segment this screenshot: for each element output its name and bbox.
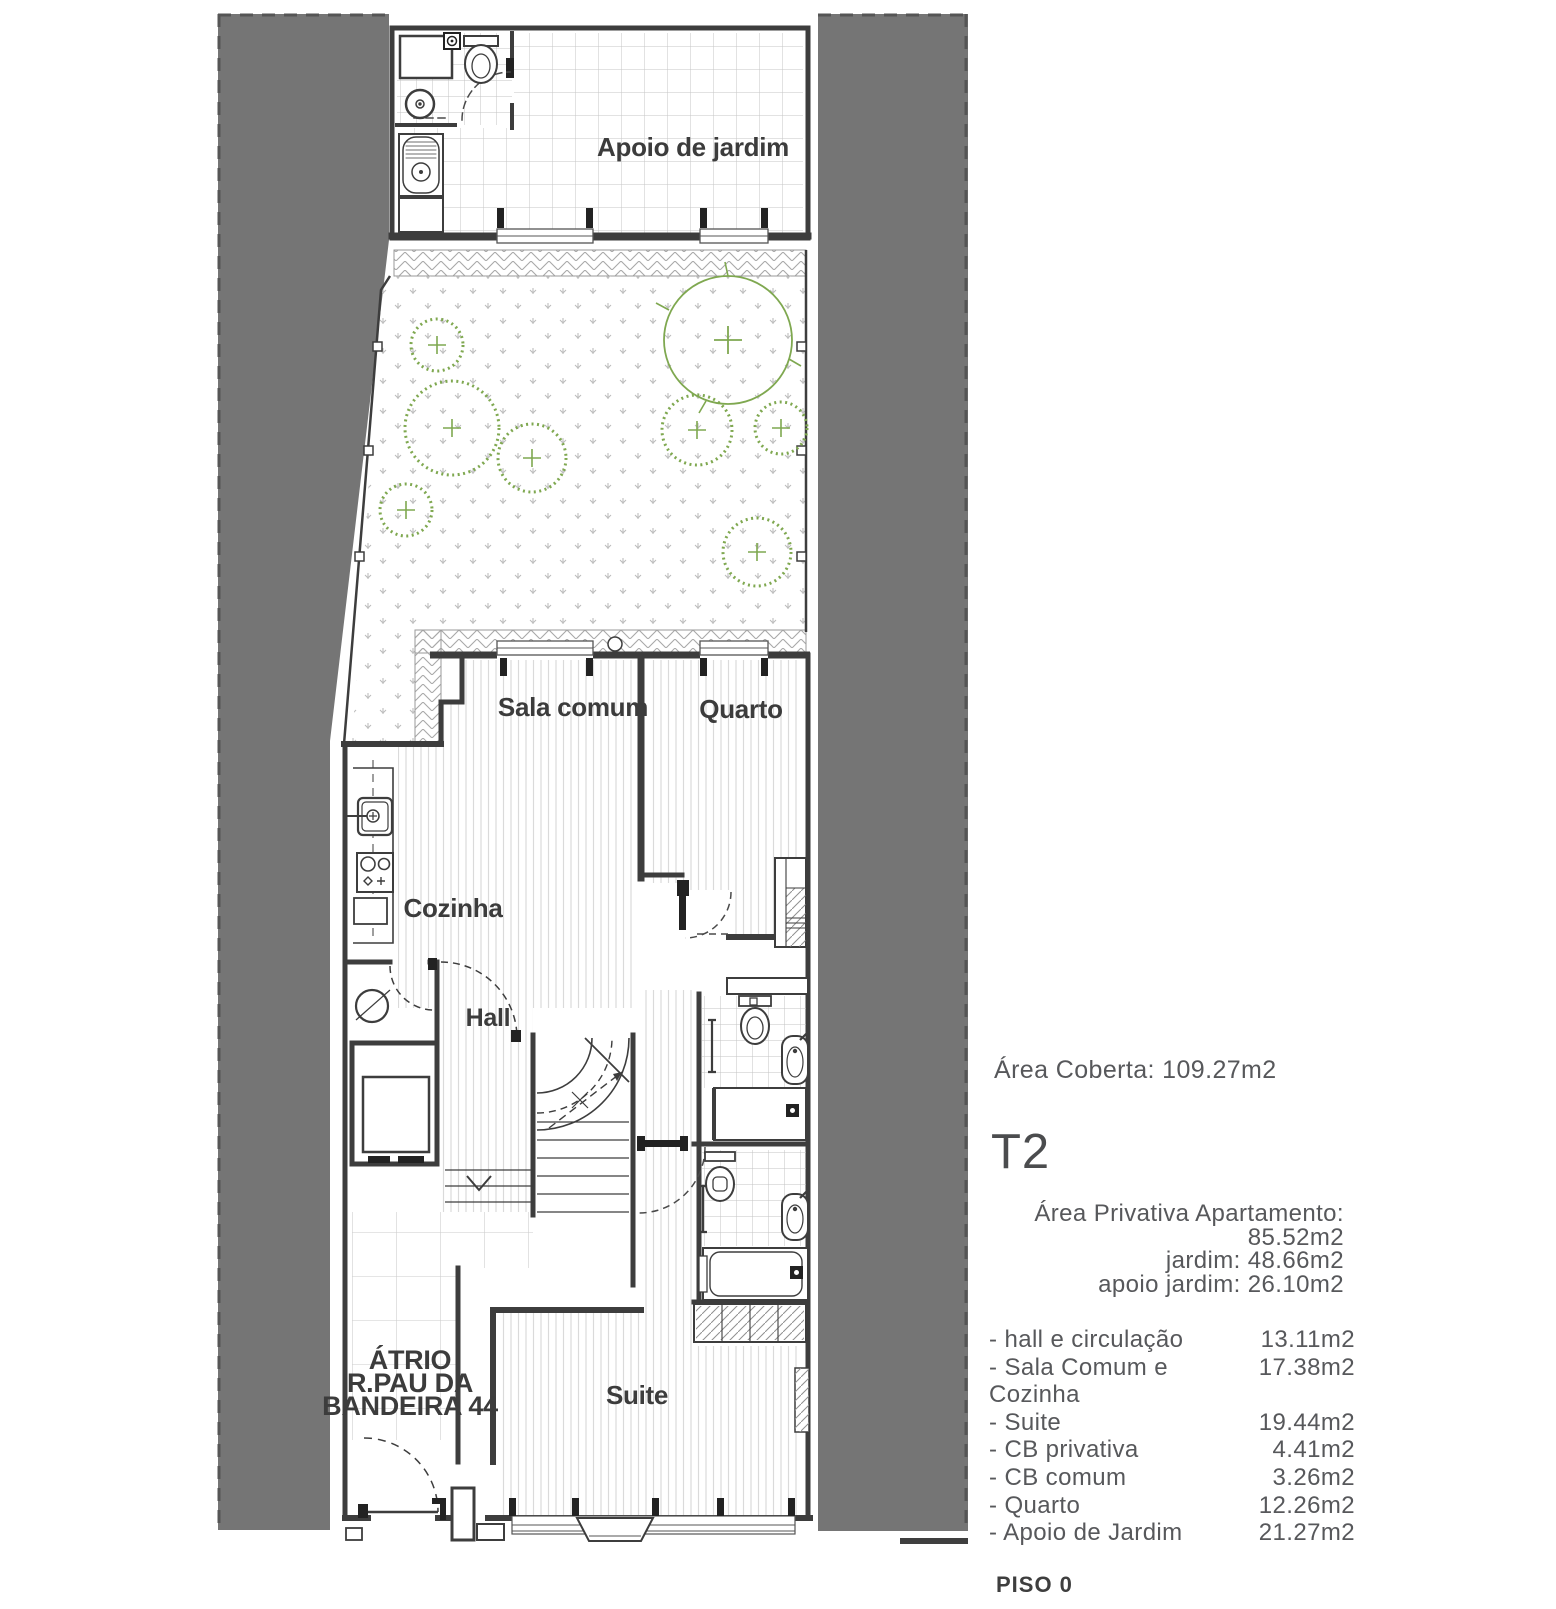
- room-areas-table: - hall e circulação 13.11m2 - Sala Comum…: [989, 1326, 1355, 1547]
- quarto-label: Quarto: [699, 694, 782, 724]
- private-area-line: apoio jardim: 26.10m2: [942, 1273, 1344, 1297]
- room-area-value: 13.11m2: [1261, 1326, 1355, 1354]
- bay-door: [577, 1518, 653, 1541]
- elevator-shaft: [352, 1043, 437, 1164]
- room-area-row: - hall e circulação 13.11m2: [989, 1326, 1355, 1354]
- unit-type-text: T2: [991, 1124, 1050, 1180]
- room-area-value: 19.44m2: [1259, 1409, 1355, 1437]
- hall-label: Hall: [466, 1004, 511, 1032]
- atrio-label-3: BANDEIRA 44: [322, 1391, 498, 1421]
- kitchen-fixtures: [344, 760, 393, 943]
- room-area-row: - Suite 19.44m2: [989, 1409, 1355, 1437]
- floor-name-text: PISO 0: [996, 1572, 1073, 1598]
- entry-step: [346, 1528, 362, 1540]
- room-area-row: - Sala Comum e Cozinha 17.38m2: [989, 1354, 1355, 1409]
- sala-comum-label: Sala comum: [498, 692, 648, 722]
- room-area-value: 4.41m2: [1273, 1436, 1355, 1464]
- sink-fixture: [782, 1032, 808, 1084]
- room-area-value: 3.26m2: [1273, 1464, 1355, 1492]
- room-area-label: - hall e circulação: [989, 1326, 1183, 1354]
- apoio-de-jardim-structure: Apoio de jardim: [392, 28, 808, 243]
- private-area-line: Área Privativa Apartamento: 85.52m2: [942, 1202, 1344, 1249]
- entrance-pillar: [452, 1488, 474, 1540]
- covered-area-text: Área Coberta: 109.27m2: [994, 1056, 1277, 1085]
- shower-tray: [714, 1088, 806, 1140]
- apoio-jardim-label: Apoio de jardim: [597, 132, 789, 162]
- room-area-label: - CB comum: [989, 1464, 1126, 1492]
- room-area-row: - Apoio de Jardim 21.27m2: [989, 1519, 1355, 1547]
- stove-fixture: [357, 853, 393, 892]
- door-jamb: [506, 58, 514, 78]
- cozinha-label: Cozinha: [403, 893, 503, 923]
- room-area-label: - Suite: [989, 1409, 1061, 1437]
- room-area-label: - CB privativa: [989, 1436, 1139, 1464]
- toilet-fixture: [705, 1152, 735, 1201]
- room-area-value: 12.26m2: [1259, 1492, 1355, 1520]
- right-block-base-mark: [900, 1538, 968, 1544]
- garden-hatch-strip-l: [415, 630, 441, 744]
- toilet-fixture: [464, 36, 498, 83]
- kitchen-sink-fixture: [344, 798, 392, 835]
- room-area-row: - CB comum 3.26m2: [989, 1464, 1355, 1492]
- entrance: [346, 1438, 504, 1540]
- sink-fixture: [782, 1190, 808, 1240]
- room-area-row: - CB privativa 4.41m2: [989, 1436, 1355, 1464]
- suite-label: Suite: [606, 1380, 668, 1410]
- bathroom-cb-comum: [702, 978, 808, 1140]
- suite-wardrobe: [694, 1304, 806, 1342]
- vanity-shelf: [727, 978, 808, 994]
- room-area-label: - Sala Comum e Cozinha: [989, 1354, 1259, 1409]
- room-area-value: 21.27m2: [1259, 1519, 1355, 1547]
- page: Apoio de jardim: [0, 0, 1556, 1609]
- door-swing-arc: [364, 1438, 438, 1512]
- kitchen-cabinet: [354, 898, 387, 924]
- private-area-line: jardim: 48.66m2: [942, 1249, 1344, 1273]
- suite-right-recess: [795, 1368, 809, 1432]
- bathtub-fixture: [699, 1248, 808, 1300]
- door-swing-arc: [685, 892, 731, 938]
- bathtub-fixture: [399, 134, 443, 232]
- room-area-row: - Quarto 12.26m2: [989, 1492, 1355, 1520]
- room-area-label: - Quarto: [989, 1492, 1080, 1520]
- toilet-fixture: [739, 996, 771, 1044]
- walkway-hatch: [394, 250, 806, 276]
- quarto-wardrobe: [775, 858, 806, 947]
- private-areas-block: Área Privativa Apartamento: 85.52m2 jard…: [942, 1202, 1344, 1296]
- neighbor-block-right: [818, 14, 968, 1544]
- round-sink-fixture: [406, 90, 434, 118]
- stair-treads: [537, 1122, 629, 1212]
- room-area-label: - Apoio de Jardim: [989, 1519, 1183, 1547]
- room-area-value: 17.38m2: [1259, 1354, 1355, 1409]
- survey-point: [608, 637, 622, 651]
- washing-machine-fixture: [444, 33, 460, 49]
